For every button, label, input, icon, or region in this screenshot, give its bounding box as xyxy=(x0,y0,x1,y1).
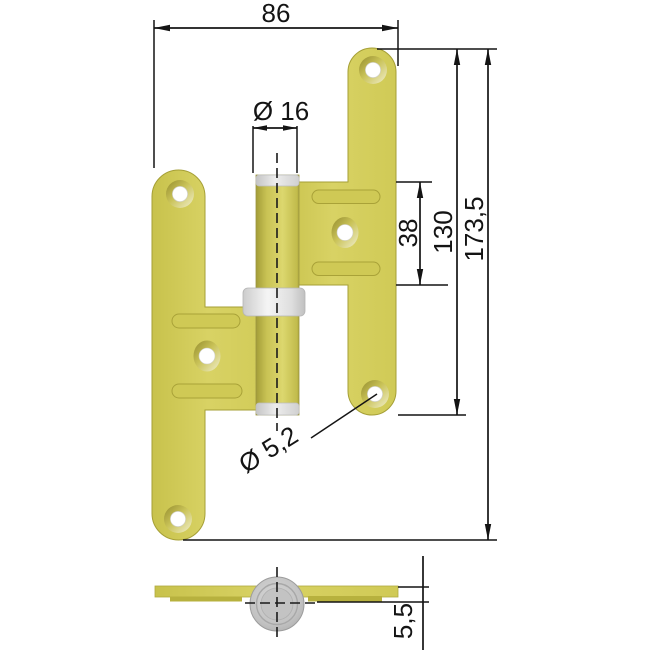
arrow-up xyxy=(485,49,491,65)
screw-hole-right-plate xyxy=(332,217,359,248)
dim-leaf-height-label: 130 xyxy=(428,210,458,253)
screw-hole-bottom-left xyxy=(164,505,192,533)
arrow-up xyxy=(417,182,423,198)
leaf-edge-offset-left xyxy=(170,597,242,602)
screw-hole-top-right xyxy=(359,56,387,84)
dim-total-height: 173,5 xyxy=(183,49,497,540)
slot-right-bottom xyxy=(312,262,380,276)
dim-screw-hole-label: Ø 5,2 xyxy=(233,420,303,479)
arrow-up xyxy=(454,49,460,65)
arrow-down xyxy=(454,399,460,415)
arrow-left xyxy=(154,25,170,31)
drawing-canvas: 86 Ø 16 38 130 173,5 Ø 5,2 xyxy=(0,0,650,650)
arrow-right xyxy=(382,25,398,31)
leaf-edge-offset-right xyxy=(308,596,382,602)
arrow-down xyxy=(485,524,491,540)
dim-thickness-label: 5,5 xyxy=(388,603,418,639)
bottom-view xyxy=(155,567,398,642)
arrow-right xyxy=(283,125,297,131)
slot-right-top xyxy=(312,190,380,204)
arrow-left xyxy=(253,125,267,131)
hinge-technical-drawing: 86 Ø 16 38 130 173,5 Ø 5,2 xyxy=(0,0,650,650)
dim-total-height-label: 173,5 xyxy=(459,196,489,261)
leader-line xyxy=(311,394,377,438)
arrow-down xyxy=(417,269,423,285)
dim-overall-width-label: 86 xyxy=(262,0,291,28)
screw-hole-top-left xyxy=(166,180,194,208)
dim-pin-diameter: Ø 16 xyxy=(253,96,309,173)
slot-left-top xyxy=(172,314,240,328)
dim-slot-span-label: 38 xyxy=(393,219,423,248)
screw-hole-bottom-right xyxy=(361,380,389,408)
dim-thickness: 5,5 xyxy=(317,556,429,650)
screw-hole-left-plate xyxy=(194,341,221,372)
dim-pin-diameter-label: Ø 16 xyxy=(253,96,309,126)
slot-left-bottom xyxy=(172,384,242,398)
bushing-ring xyxy=(243,288,305,316)
